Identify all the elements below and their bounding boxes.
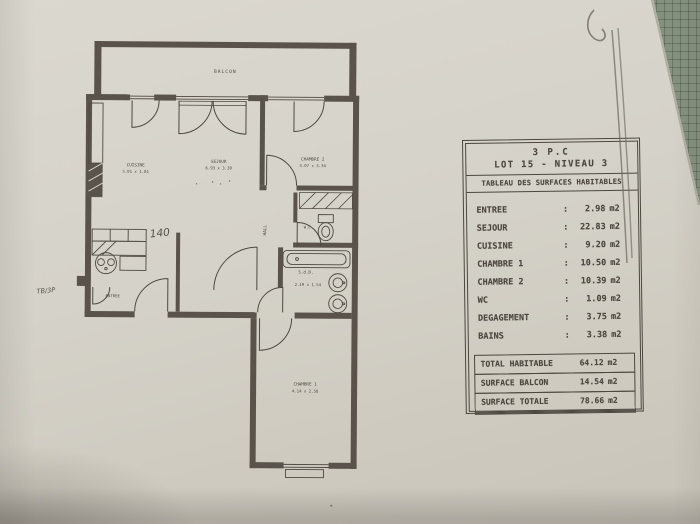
room-label-hall: HALL (262, 225, 268, 236)
row-unit: m2 (606, 239, 630, 249)
handwritten-measure: 140 (149, 226, 170, 240)
table-row: ENTREE:2.98m2 (476, 203, 629, 223)
room-label-sejour: SEJOUR (211, 159, 227, 165)
room-label-cuisine: CUISINE (127, 162, 146, 168)
row-colon: : (559, 258, 573, 268)
row-unit: m2 (606, 221, 630, 231)
row-colon: : (559, 222, 573, 232)
closet-hatch (299, 192, 352, 208)
row-label: WC (478, 294, 560, 305)
row-unit: m2 (606, 275, 630, 285)
room-label-sdb: S.d.B. (298, 269, 313, 274)
row-label: BAINS (478, 330, 560, 341)
row-label: CUISINE (477, 240, 559, 251)
row-value: 10.50 (573, 257, 606, 267)
table-inner: 3 P.C LOT 15 - NIVEAU 3 TABLEAU DES SURF… (465, 140, 642, 411)
row-value: 3.38 (574, 329, 607, 339)
total-value: 78.66 (563, 396, 604, 406)
row-unit: m2 (607, 293, 631, 303)
total-row-totale: SURFACE TOTALE78.66m2 (474, 390, 635, 414)
handwritten-annotations: 140 TB/3P (36, 226, 171, 297)
row-value: 9.20 (573, 240, 606, 250)
total-value: 14.54 (563, 377, 604, 387)
row-label: DEGAGEMENT (478, 312, 560, 323)
row-label: SEJOUR (477, 222, 559, 233)
total-unit: m2 (604, 377, 628, 386)
balcony-label: BALCON (214, 69, 237, 75)
row-colon: : (559, 276, 573, 286)
table-rows: ENTREE:2.98m2 SEJOUR:22.83m2 CUISINE:9.2… (472, 190, 633, 349)
toilet-bowl-icon (318, 223, 333, 241)
total-label: SURFACE BALCON (481, 378, 563, 388)
total-label: TOTAL HABITABLE (481, 359, 563, 369)
row-value: 10.39 (573, 275, 606, 285)
row-unit: m2 (607, 311, 631, 321)
basin-icon (329, 295, 347, 313)
row-unit: m2 (607, 329, 631, 339)
row-label: ENTREE (476, 204, 558, 215)
row-label: CHAMBRE 1 (477, 258, 559, 269)
room-dims-chambre1: 4.14 x 2.58 (292, 388, 319, 393)
room-dims-sdb: 2.19 x 1.54 (295, 282, 322, 287)
basin-icon (329, 274, 347, 292)
row-value: 2.98 (572, 204, 605, 214)
room-dims-chambre2: 3.07 x 3.34 (299, 163, 326, 168)
table-row: CHAMBRE 2:10.39m2 (477, 275, 630, 295)
room-dims-cuisine: 5.01 x 1.81 (122, 169, 149, 174)
total-label: SURFACE TOTALE (481, 397, 563, 407)
room-label-entree: ENTREE (106, 293, 121, 298)
row-colon: : (560, 294, 574, 304)
row-unit: m2 (605, 203, 629, 213)
table-row: WC:1.09m2 (478, 293, 631, 313)
row-value: 22.83 (573, 222, 606, 232)
room-dims-sejour: 6.93 x 3.30 (205, 165, 232, 170)
row-colon: : (560, 330, 574, 340)
total-unit: m2 (604, 358, 628, 367)
room-label-chambre1: CHAMBRE 1 (293, 381, 317, 387)
row-colon: : (558, 204, 572, 214)
photographed-floor-plan-document: BALCON CUISINE 5.01 x 1.81 SEJOUR 6.93 x… (0, 0, 700, 524)
row-value: 3.75 (574, 311, 607, 321)
toilet-cistern-icon (318, 215, 333, 223)
hob-icon (95, 253, 116, 274)
room-label-chambre2: CHAMBRE 2 (301, 156, 325, 162)
row-value: 1.09 (574, 293, 607, 303)
row-colon: : (559, 240, 573, 250)
total-value: 64.12 (563, 358, 604, 368)
table-row: DEGAGEMENT:3.75m2 (478, 311, 631, 331)
table-row: CHAMBRE 1:10.50m2 (477, 257, 630, 277)
table-row: SEJOUR:22.83m2 (477, 221, 630, 241)
table-row: CUISINE:9.20m2 (477, 239, 630, 259)
handwritten-reference: TB/3P (36, 286, 55, 296)
total-unit: m2 (604, 396, 628, 405)
row-unit: m2 (606, 257, 630, 267)
floor-plan-drawing: BALCON CUISINE 5.01 x 1.81 SEJOUR 6.93 x… (0, 0, 462, 524)
row-colon: : (560, 312, 574, 322)
table-totals: TOTAL HABITABLE64.12m2 SURFACE BALCON14.… (474, 353, 636, 414)
row-label: CHAMBRE 2 (477, 276, 559, 287)
paper-edge-line (652, 0, 699, 205)
room-label-wc: W.C (304, 225, 311, 230)
surface-table: 3 P.C LOT 15 - NIVEAU 3 TABLEAU DES SURF… (462, 138, 644, 414)
table-row: BAINS:3.38m2 (478, 329, 631, 349)
pencil-hook-mark (588, 10, 605, 41)
